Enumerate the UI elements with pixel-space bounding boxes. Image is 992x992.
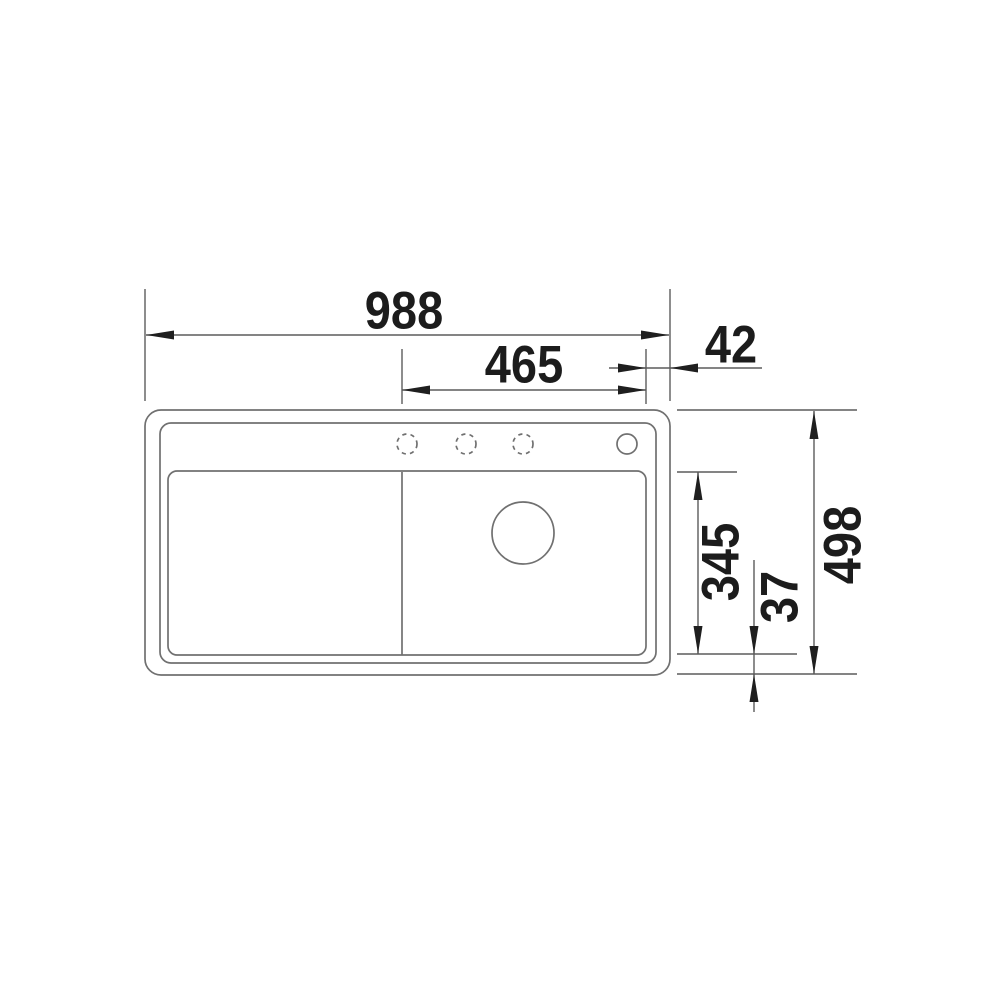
drain-hole xyxy=(492,502,554,564)
arrowhead-37-bottom xyxy=(750,674,759,702)
faucet-hole-dashed-3 xyxy=(513,434,533,454)
dim-label-overall-depth: 498 xyxy=(816,506,869,584)
technical-drawing-canvas: 988 465 42 345 37 498 xyxy=(0,0,992,992)
faucet-hole-dashed-2 xyxy=(456,434,476,454)
sink-basin-outline xyxy=(168,471,646,655)
sink-outer-outline xyxy=(145,410,670,675)
arrowhead-345-bottom xyxy=(694,626,703,654)
arrowhead-465-left xyxy=(402,386,430,395)
sink-rim-outline xyxy=(160,423,656,663)
dim-label-right-edge-offset: 42 xyxy=(705,318,757,371)
arrowhead-42-right xyxy=(670,364,698,373)
sink-outline-group xyxy=(145,410,670,675)
sink-dimension-drawing xyxy=(0,0,992,992)
arrowhead-988-right xyxy=(641,331,669,340)
dim-label-bowl-width: 465 xyxy=(485,338,563,391)
arrowhead-42-left xyxy=(618,364,646,373)
faucet-hole-dashed-1 xyxy=(397,434,417,454)
dim-label-overall-width: 988 xyxy=(365,284,443,337)
arrowhead-988-left xyxy=(146,331,174,340)
dim-label-bowl-depth: 345 xyxy=(694,523,747,601)
arrowhead-498-bottom xyxy=(810,646,819,674)
dim-label-bottom-edge-offset: 37 xyxy=(753,571,806,623)
arrowhead-465-right xyxy=(618,386,646,395)
arrowhead-345-top xyxy=(694,472,703,500)
arrowheads-group xyxy=(146,331,819,703)
faucet-hole-solid xyxy=(617,434,637,454)
arrowhead-37-top xyxy=(750,626,759,654)
arrowhead-498-top xyxy=(810,411,819,439)
